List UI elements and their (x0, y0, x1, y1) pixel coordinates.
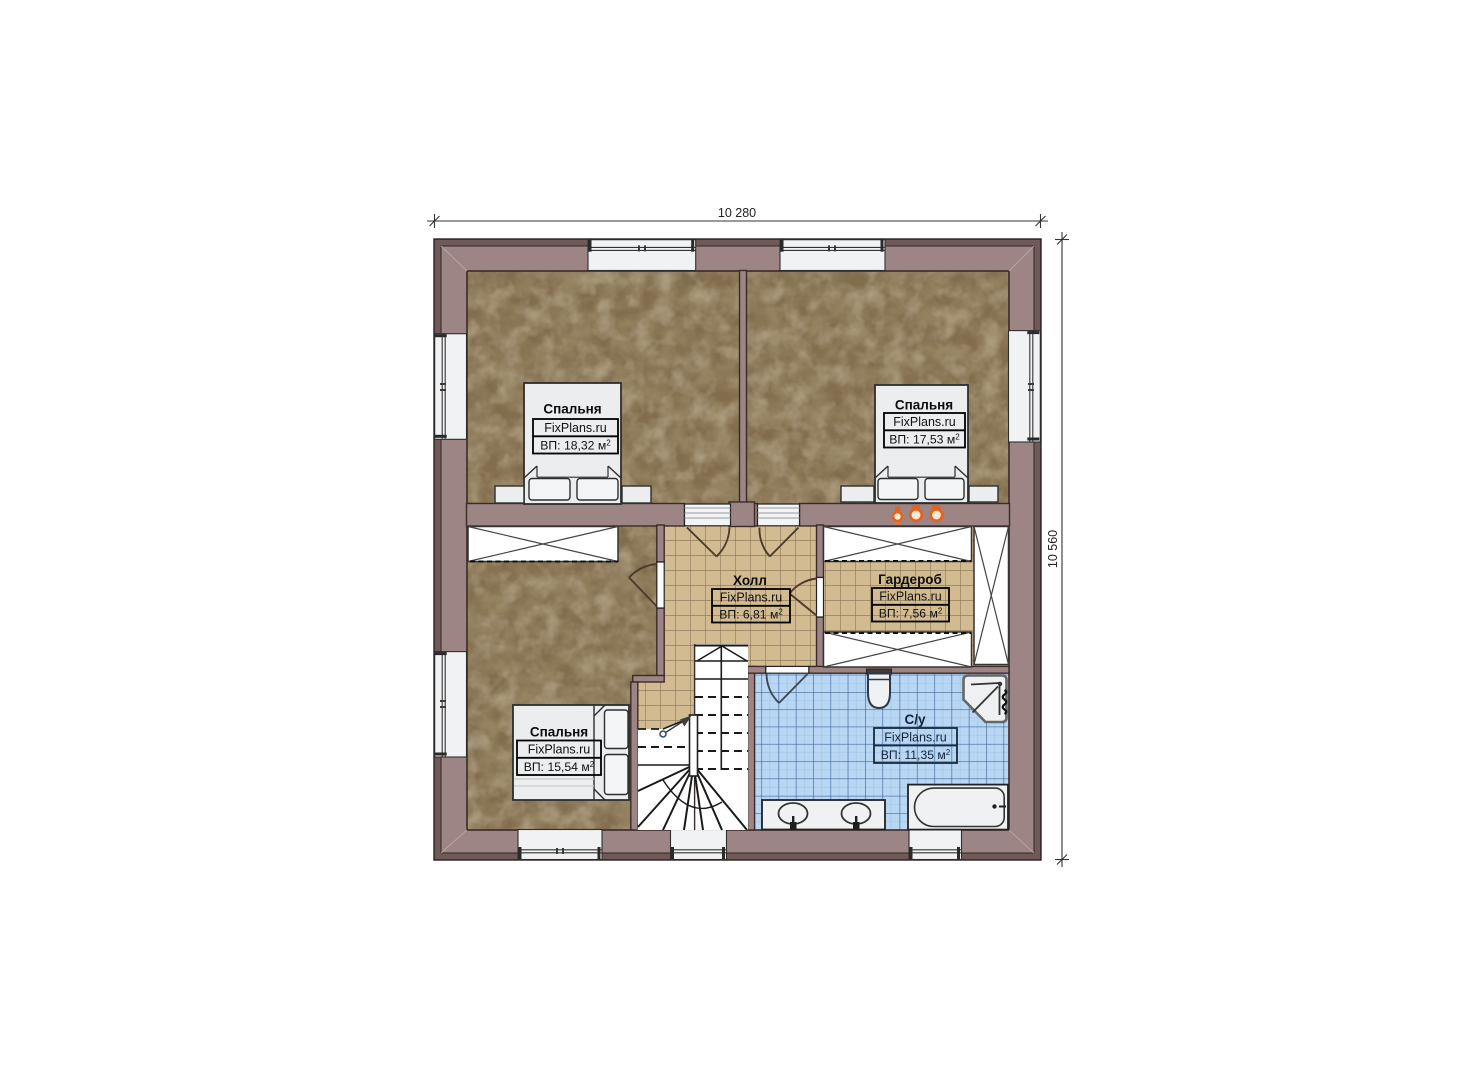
svg-text:ВП: 18,32 м2: ВП: 18,32 м2 (540, 439, 611, 453)
svg-text:С/у: С/у (904, 712, 926, 727)
svg-text:FixPlans.ru: FixPlans.ru (544, 421, 607, 435)
svg-text:FixPlans.ru: FixPlans.ru (884, 731, 947, 745)
svg-text:Спальня: Спальня (530, 725, 588, 740)
svg-text:10 280: 10 280 (718, 206, 756, 220)
svg-text:ВП: 7,56 м2: ВП: 7,56 м2 (879, 607, 943, 621)
svg-text:ВП: 17,53 м2: ВП: 17,53 м2 (889, 433, 960, 447)
svg-text:FixPlans.ru: FixPlans.ru (893, 415, 956, 429)
svg-text:Гардероб: Гардероб (878, 572, 942, 587)
svg-text:Холл: Холл (733, 573, 767, 588)
svg-text:ВП: 6,81 м2: ВП: 6,81 м2 (719, 608, 783, 622)
svg-text:ВП: 11,35 м2: ВП: 11,35 м2 (881, 748, 951, 762)
svg-text:Спальня: Спальня (895, 398, 953, 413)
svg-text:Спальня: Спальня (543, 402, 601, 417)
svg-text:ВП: 15,54 м2: ВП: 15,54 м2 (524, 760, 595, 774)
svg-text:FixPlans.ru: FixPlans.ru (879, 590, 942, 604)
svg-text:FixPlans.ru: FixPlans.ru (720, 591, 783, 605)
svg-text:FixPlans.ru: FixPlans.ru (528, 743, 591, 757)
svg-text:10 560: 10 560 (1046, 530, 1060, 568)
